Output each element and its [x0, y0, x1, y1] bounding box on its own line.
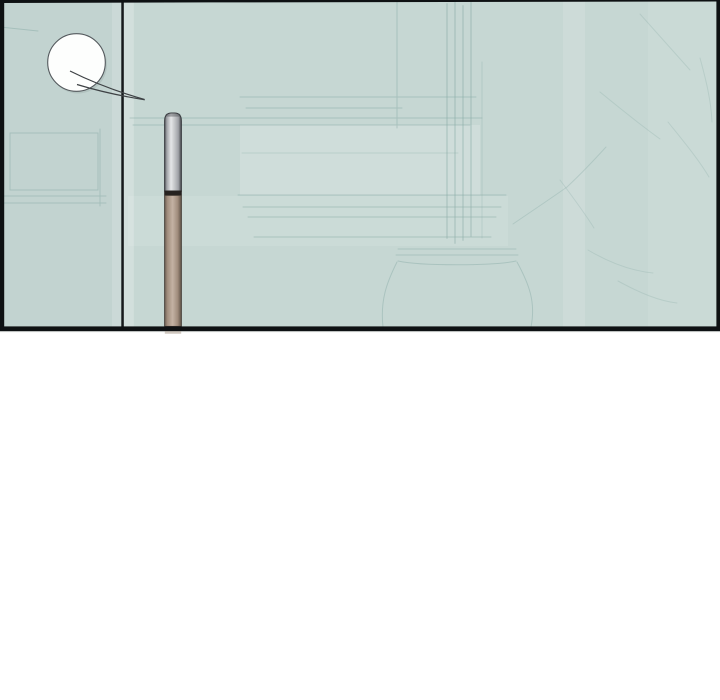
panel-divider-line — [121, 0, 124, 327]
pole-wooden-shaft — [165, 195, 182, 326]
counter-light-band — [128, 196, 508, 246]
pole — [164, 113, 182, 326]
pole-cap-shading — [166, 114, 181, 117]
divider-highlight-left — [112, 0, 121, 327]
pole-silver-section — [165, 113, 182, 191]
right-wall-strip — [563, 0, 585, 327]
panel-border-bottom — [0, 326, 720, 331]
pole-dark-band — [164, 191, 182, 196]
wall-light-band — [240, 125, 480, 195]
comic-panel-artwork — [0, 0, 720, 700]
border-fringe — [0, 331, 720, 332]
comic-page — [0, 0, 720, 700]
panel-border-right — [716, 0, 720, 331]
panel-background — [0, 0, 720, 331]
pole-bleed-smudge — [165, 331, 181, 334]
panel-border-left — [0, 0, 4, 331]
right-edge-strip — [648, 0, 716, 327]
divider-highlight-right — [124, 0, 134, 327]
